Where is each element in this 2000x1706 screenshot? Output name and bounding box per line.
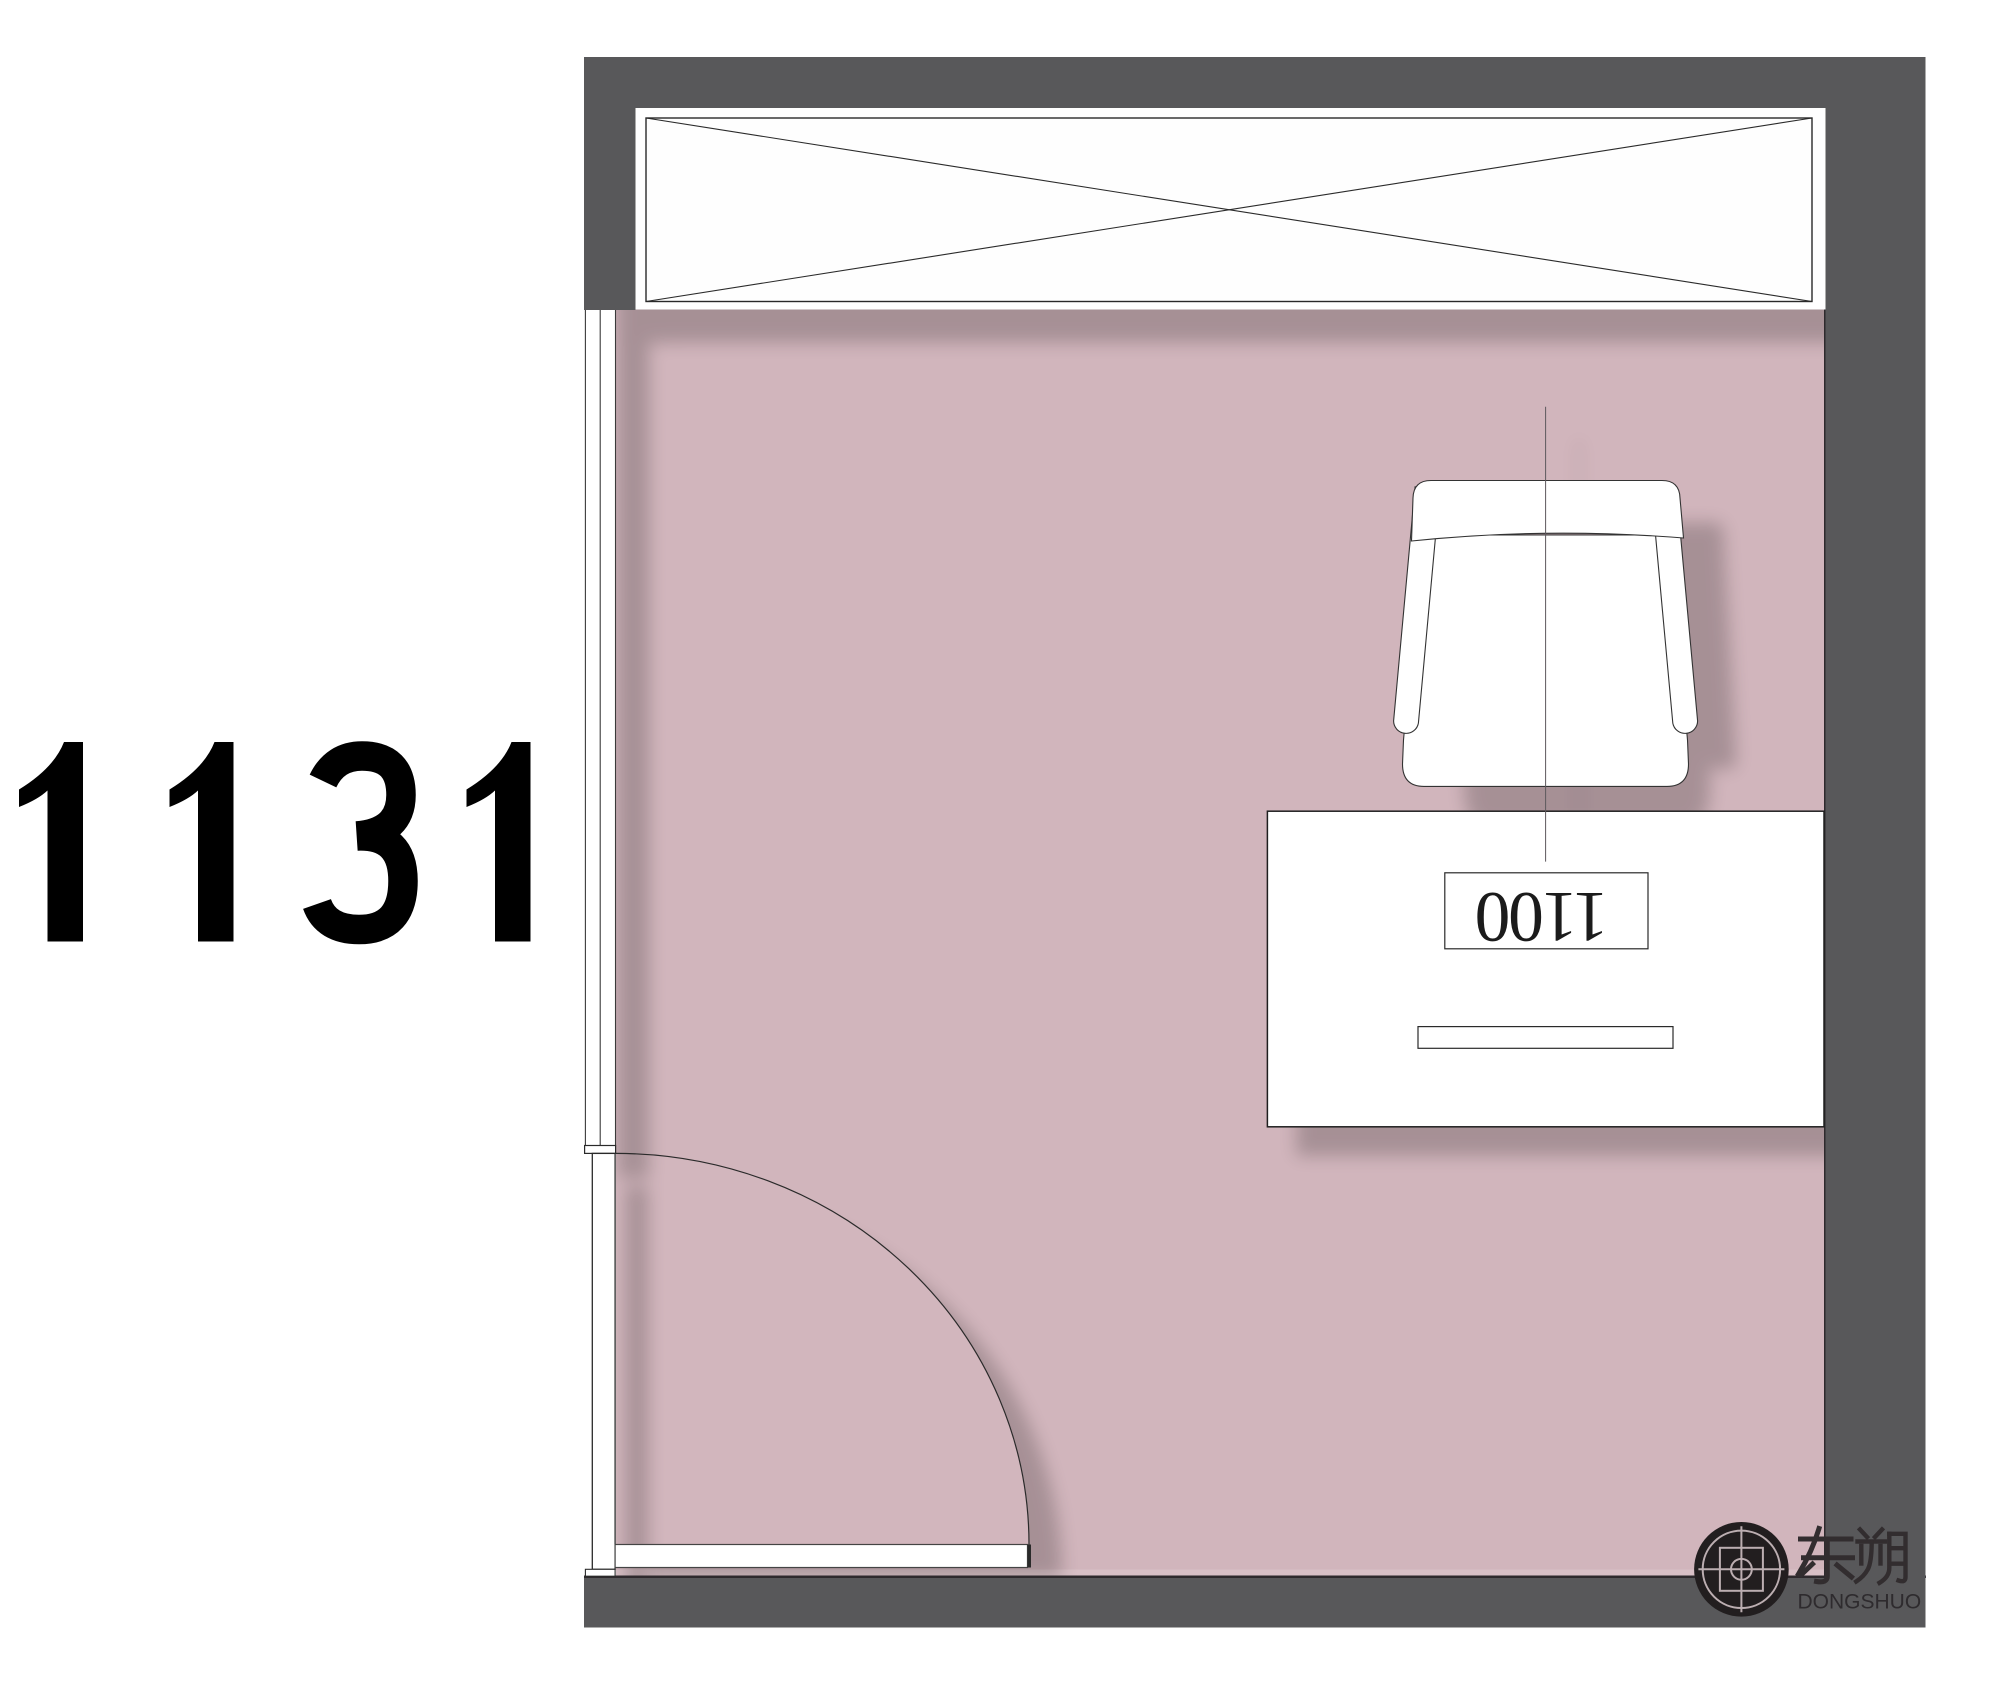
svg-text:DONGSHUO: DONGSHUO (1798, 1590, 1922, 1613)
svg-text:1100: 1100 (1476, 877, 1608, 956)
